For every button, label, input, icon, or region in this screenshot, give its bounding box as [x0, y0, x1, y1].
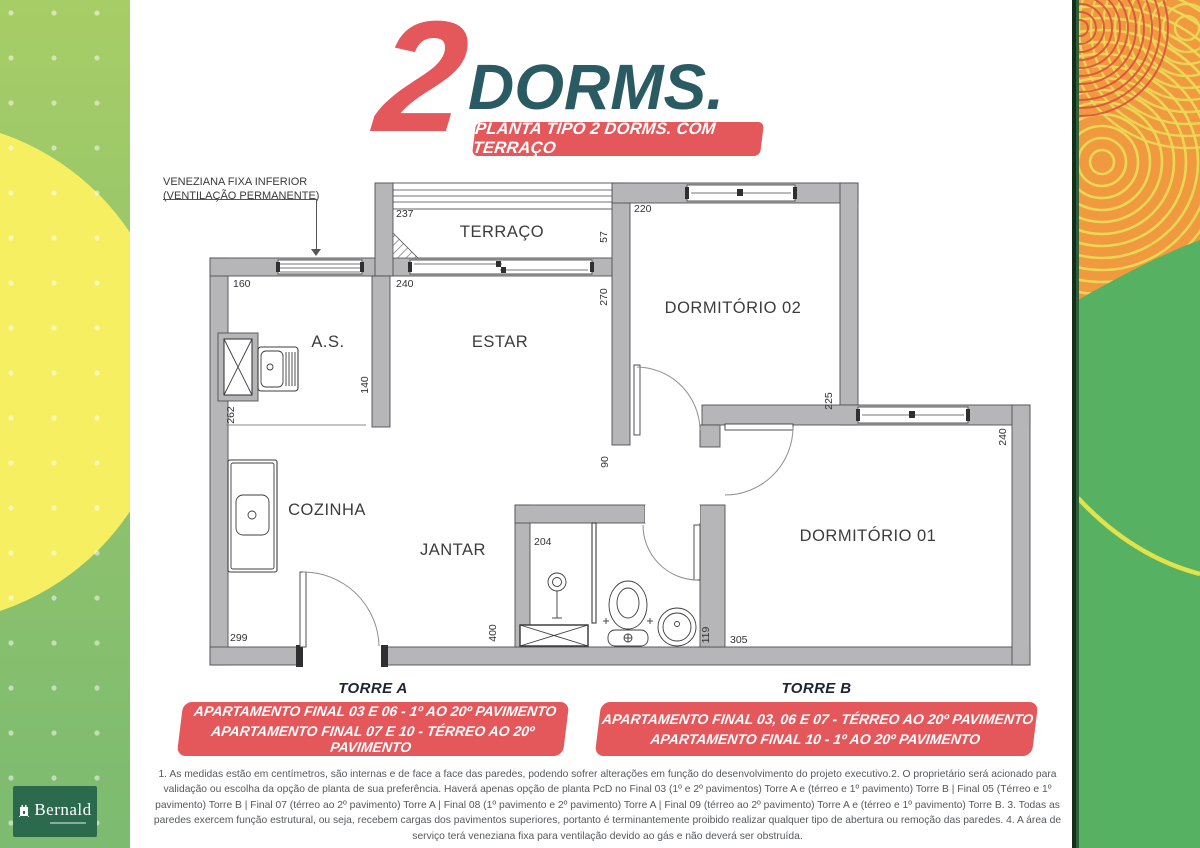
toilet: [603, 581, 653, 646]
entrance-doorway: [296, 645, 388, 667]
title-big-number: 2: [371, 8, 473, 147]
service-shaft: [218, 333, 258, 401]
kitchen-counter: [228, 460, 277, 572]
torre-b-line1: APARTAMENTO FINAL 03, 06 E 07 - TÉRREO A…: [598, 711, 1037, 727]
dim-hall-w: 90: [599, 456, 611, 468]
room-label-jantar: JANTAR: [420, 541, 486, 559]
right-band-edge-dark: [1072, 0, 1076, 848]
dim-shower-w: 204: [534, 536, 552, 548]
torre-b-label: TORRE B: [598, 680, 1035, 697]
dim-bath-w: 119: [700, 626, 712, 643]
dim-terraco-d: 57: [598, 231, 610, 243]
torre-a-label: TORRE A: [180, 680, 566, 697]
bernald-logo: Bernald: [13, 786, 97, 837]
torre-a-line2: APARTAMENTO FINAL 07 E 10 - TÉRREO AO 20…: [177, 723, 567, 755]
dim-estar-w: 240: [396, 278, 414, 290]
dim-as-d: 140: [359, 376, 371, 394]
bedroom1-door: [725, 424, 793, 495]
shower-area: [520, 523, 596, 646]
dim-dorm1-w: 305: [730, 634, 748, 646]
veneziana-window: [276, 260, 364, 274]
dim-as-w: 160: [233, 278, 251, 290]
bedroom1-window: [856, 407, 970, 423]
room-label-as: A.S.: [311, 333, 344, 351]
bedroom2-window: [685, 185, 797, 201]
dim-dorm1-d: 240: [997, 428, 1009, 446]
floor-plan: TERRAÇO A.S. ESTAR DORMITÓRIO 02 COZINHA…: [200, 175, 1040, 675]
room-label-cozinha: COZINHA: [288, 501, 366, 519]
right-decor-band: [1072, 0, 1200, 848]
washbasin: [658, 608, 696, 646]
dim-cozinha-w: 299: [230, 632, 248, 644]
room-label-dorm2: DORMITÓRIO 02: [665, 298, 802, 317]
dim-dorm2-w: 220: [634, 203, 652, 215]
entrance-door: [300, 572, 379, 647]
dim-estar-d: 270: [598, 288, 610, 306]
bathroom-door: [643, 505, 700, 580]
terrace-corner-hatch: [393, 233, 418, 258]
logo-name: Bernald: [34, 800, 91, 820]
right-band-edge-shade: [1076, 0, 1079, 848]
dim-as-h: 262: [225, 406, 237, 424]
footnote-text: 1. As medidas estão em centímetros, são …: [150, 767, 1065, 844]
bedroom2-door: [634, 365, 700, 435]
left-decor-band: [0, 0, 130, 848]
torre-a-line1: APARTAMENTO FINAL 03 E 06 - 1º AO 20º PA…: [181, 703, 569, 719]
logo-tagline-line: [50, 822, 86, 824]
room-label-estar: ESTAR: [472, 333, 528, 351]
dim-jantar-d: 400: [487, 624, 499, 642]
terrace-sliding-door: [408, 260, 594, 274]
room-label-terraco: TERRAÇO: [460, 223, 544, 241]
room-label-dorm1: DORMITÓRIO 01: [800, 526, 937, 545]
torre-b-line2: APARTAMENTO FINAL 10 - 1º AO 20º PAVIMEN…: [596, 731, 1035, 747]
torre-a-banner: APARTAMENTO FINAL 03 E 06 - 1º AO 20º PA…: [177, 702, 570, 756]
title-word: DORMS.: [468, 50, 724, 124]
left-band-dot-pattern: [0, 0, 130, 848]
dim-terraco-w: 237: [396, 208, 414, 220]
torre-b-banner: APARTAMENTO FINAL 03, 06 E 07 - TÉRREO A…: [595, 702, 1039, 756]
title-banner: PLANTA TIPO 2 DORMS. COM TERRAÇO: [472, 122, 764, 156]
tower-icon: [18, 802, 30, 817]
dim-dorm2-h: 225: [823, 392, 835, 410]
title-banner-text: PLANTA TIPO 2 DORMS. COM TERRAÇO: [472, 120, 765, 158]
laundry-tank: [258, 347, 298, 391]
terrace-parapet: [393, 183, 612, 209]
poster-page: 2 DORMS. PLANTA TIPO 2 DORMS. COM TERRAÇ…: [0, 0, 1200, 848]
